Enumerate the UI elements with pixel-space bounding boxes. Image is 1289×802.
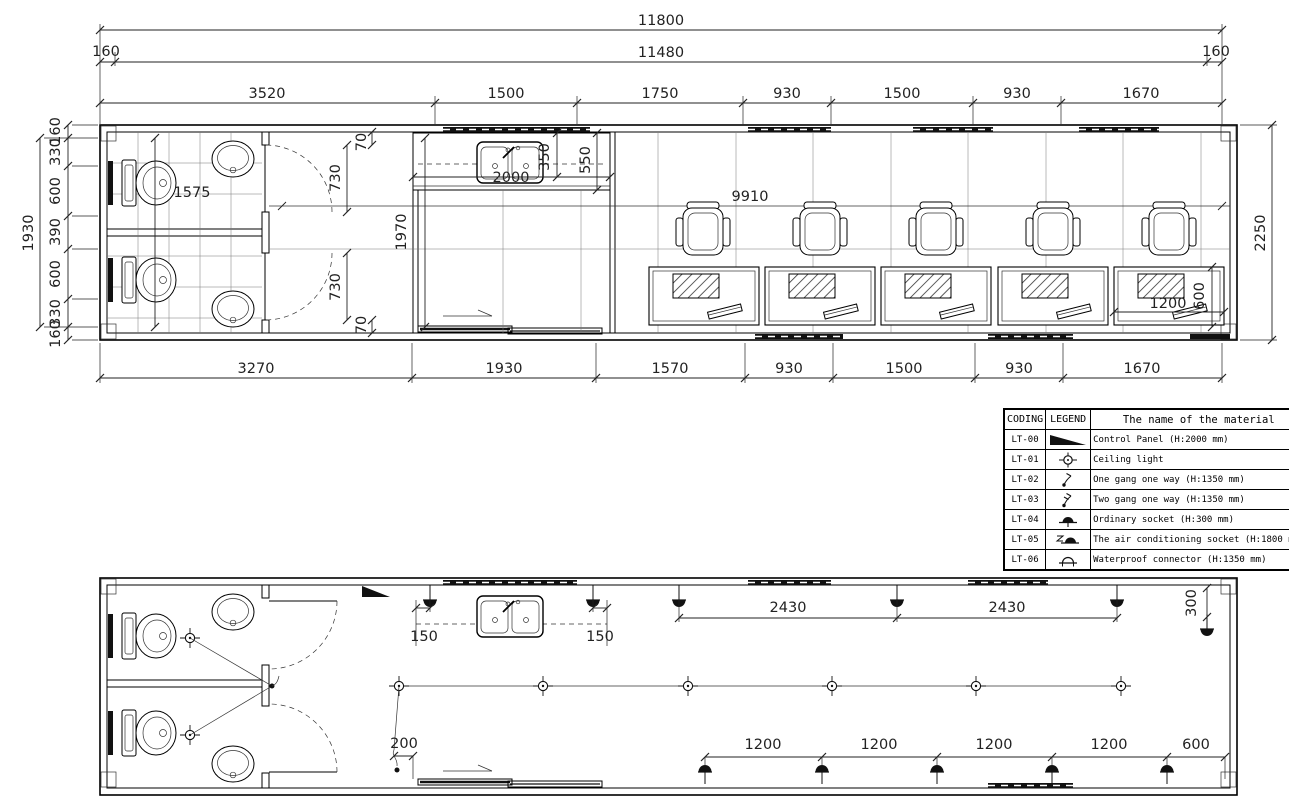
dim-text: 600 (1182, 737, 1210, 753)
dim-text: 2000 (493, 170, 530, 186)
dim-text: 160 (92, 44, 120, 60)
legend-code: LT-03 (1004, 490, 1046, 510)
workstations (649, 202, 1224, 325)
bathroom (108, 594, 337, 782)
chair-icon (909, 202, 963, 255)
legend-row: LT-04 Ordinary socket (H:300 mm) (1004, 510, 1289, 530)
electrical-symbols (180, 585, 1214, 784)
dim-text: 150 (410, 629, 438, 645)
legend-code: LT-00 (1004, 430, 1046, 450)
dim-text: 3520 (249, 86, 286, 102)
dim-text: 1570 (652, 361, 689, 377)
dim-text: 1575 (174, 185, 211, 201)
chair-icon (793, 202, 847, 255)
cad-sheet: { "dims": { "t11800": "11800", "t160a": … (0, 0, 1289, 802)
legend-table: CODING LEGEND The name of the material L… (1003, 408, 1289, 571)
legend-header-legend: LEGEND (1046, 409, 1091, 430)
technical-drawing: 11800 160 11480 160 3520 1500 1750 930 1… (0, 0, 1289, 802)
legend-name: Ceiling light (1091, 450, 1289, 470)
sliding-door (418, 765, 602, 787)
ac-socket-icon (1048, 532, 1088, 548)
dim-text: 1750 (642, 86, 679, 102)
toilet-icon (122, 257, 176, 303)
ordinary-socket-icon (930, 765, 944, 784)
dim-text: 2430 (989, 600, 1026, 616)
sink-basin-icon (212, 746, 254, 782)
ceiling-light-icon (966, 676, 986, 696)
ceiling-light-icon (1111, 676, 1131, 696)
dim-text: 70 (354, 316, 370, 334)
dim-text: 1200 (1150, 296, 1187, 312)
dim-text: 300 (1184, 589, 1200, 617)
two-gang-switch-icon (1048, 492, 1088, 508)
dim-text: 160 (48, 320, 64, 348)
dim-text: 1200 (861, 737, 898, 753)
ordinary-socket-icon (1045, 765, 1059, 784)
legend-header-coding: CODING (1004, 409, 1046, 430)
ceiling-light-icon (678, 676, 698, 696)
dim-text: 730 (328, 164, 344, 192)
legend-row: LT-02 One gang one way (H:1350 mm) (1004, 470, 1289, 490)
dim-text: 11800 (638, 13, 684, 29)
door (269, 704, 337, 772)
chair-icon (1026, 202, 1080, 255)
legend-row: LT-01 Ceiling light (1004, 450, 1289, 470)
dim-text: 1930 (486, 361, 523, 377)
legend-row: LT-03 Two gang one way (H:1350 mm) (1004, 490, 1289, 510)
sliding-door (418, 310, 602, 334)
double-sink-icon (477, 596, 543, 637)
sink-basin-icon (212, 141, 254, 177)
desk-icon (649, 267, 759, 325)
ceiling-light-icon (533, 676, 553, 696)
dim-text: 550 (578, 146, 594, 174)
control-panel-icon (362, 586, 390, 597)
toilet-icon (122, 160, 176, 206)
dim-text: 930 (1003, 86, 1031, 102)
sink-basin-icon (212, 291, 254, 327)
dim-text: 1500 (488, 86, 525, 102)
ordinary-socket-icon (1160, 765, 1174, 784)
dim-text: 9910 (732, 189, 769, 205)
legend-row: LT-00 Control Panel (H:2000 mm) (1004, 430, 1289, 450)
dim-text: 1670 (1124, 361, 1161, 377)
dim-text: 150 (586, 629, 614, 645)
ordinary-socket-icon (1048, 512, 1088, 528)
floor-plan: 11800 160 11480 160 3520 1500 1750 930 1… (21, 13, 1277, 383)
legend-name: Waterproof connector (H:1350 mm) (1091, 550, 1289, 571)
chair-icon (1142, 202, 1196, 255)
ordinary-socket-icon (698, 765, 712, 784)
one-gang-switch-icon (1048, 472, 1088, 488)
door (265, 253, 332, 320)
legend-code: LT-06 (1004, 550, 1046, 571)
dim-text: 1500 (884, 86, 921, 102)
dim-text: 930 (1005, 361, 1033, 377)
legend-code: LT-01 (1004, 450, 1046, 470)
dim-text: 11480 (638, 45, 684, 61)
dim-text: 2430 (770, 600, 807, 616)
sink-basin-icon (212, 594, 254, 630)
ceiling-light-icon (1048, 452, 1088, 468)
ac-socket-icon (1200, 614, 1214, 636)
control-panel-icon (1048, 432, 1088, 448)
legend-name: One gang one way (H:1350 mm) (1091, 470, 1289, 490)
dim-text: 1970 (394, 214, 410, 251)
legend-row: LT-06 Waterproof connector (H:1350 mm) (1004, 550, 1289, 571)
toilet-icon (122, 710, 176, 756)
dim-text: 1200 (745, 737, 782, 753)
dim-text: 600 (48, 260, 64, 288)
desk-icon (765, 267, 875, 325)
ordinary-socket-icon (815, 765, 829, 784)
dim-text: 70 (354, 133, 370, 151)
dim-text: 1500 (886, 361, 923, 377)
legend-header-row: CODING LEGEND The name of the material (1004, 409, 1289, 430)
legend-name: The air conditioning socket (H:1800 mm) (1091, 530, 1289, 550)
dim-text: 330 (48, 138, 64, 166)
dim-text: 1200 (976, 737, 1013, 753)
dim-text: 730 (328, 273, 344, 301)
desk-icon (881, 267, 991, 325)
toilet-icon (122, 613, 176, 659)
desk-icon (998, 267, 1108, 325)
dim-text: 600 (48, 177, 64, 205)
electrical-plan: 150 150 2430 2430 300 200 1200 1200 1200… (100, 578, 1237, 795)
bathroom (108, 141, 332, 327)
dim-text: 200 (390, 736, 418, 752)
dim-text: 1670 (1123, 86, 1160, 102)
chair-icon (676, 202, 730, 255)
slide-direction-arrow (443, 310, 492, 316)
dim-text: 390 (48, 218, 64, 246)
legend-name: Control Panel (H:2000 mm) (1091, 430, 1289, 450)
legend-code: LT-04 (1004, 510, 1046, 530)
door (265, 145, 332, 212)
legend-row: LT-05 The air conditioning socket (H:180… (1004, 530, 1289, 550)
legend-name: Two gang one way (H:1350 mm) (1091, 490, 1289, 510)
dim-text: 930 (773, 86, 801, 102)
dim-text: 160 (1202, 44, 1230, 60)
ceiling-light-icon (822, 676, 842, 696)
dim-text: 1200 (1091, 737, 1128, 753)
dim-text: 2250 (1253, 215, 1269, 252)
waterproof-connector-icon (1048, 552, 1088, 568)
door (269, 601, 337, 669)
dim-text: 350 (537, 143, 553, 171)
dim-text: 1930 (21, 215, 37, 252)
dim-text: 930 (775, 361, 803, 377)
legend-code: LT-02 (1004, 470, 1046, 490)
legend-code: LT-05 (1004, 530, 1046, 550)
dim-text: 3270 (238, 361, 275, 377)
legend-header-name: The name of the material (1091, 409, 1289, 430)
legend-name: Ordinary socket (H:300 mm) (1091, 510, 1289, 530)
dim-text: 600 (1192, 282, 1208, 310)
extension-lines (44, 24, 1277, 383)
slide-direction-arrow (443, 765, 492, 771)
